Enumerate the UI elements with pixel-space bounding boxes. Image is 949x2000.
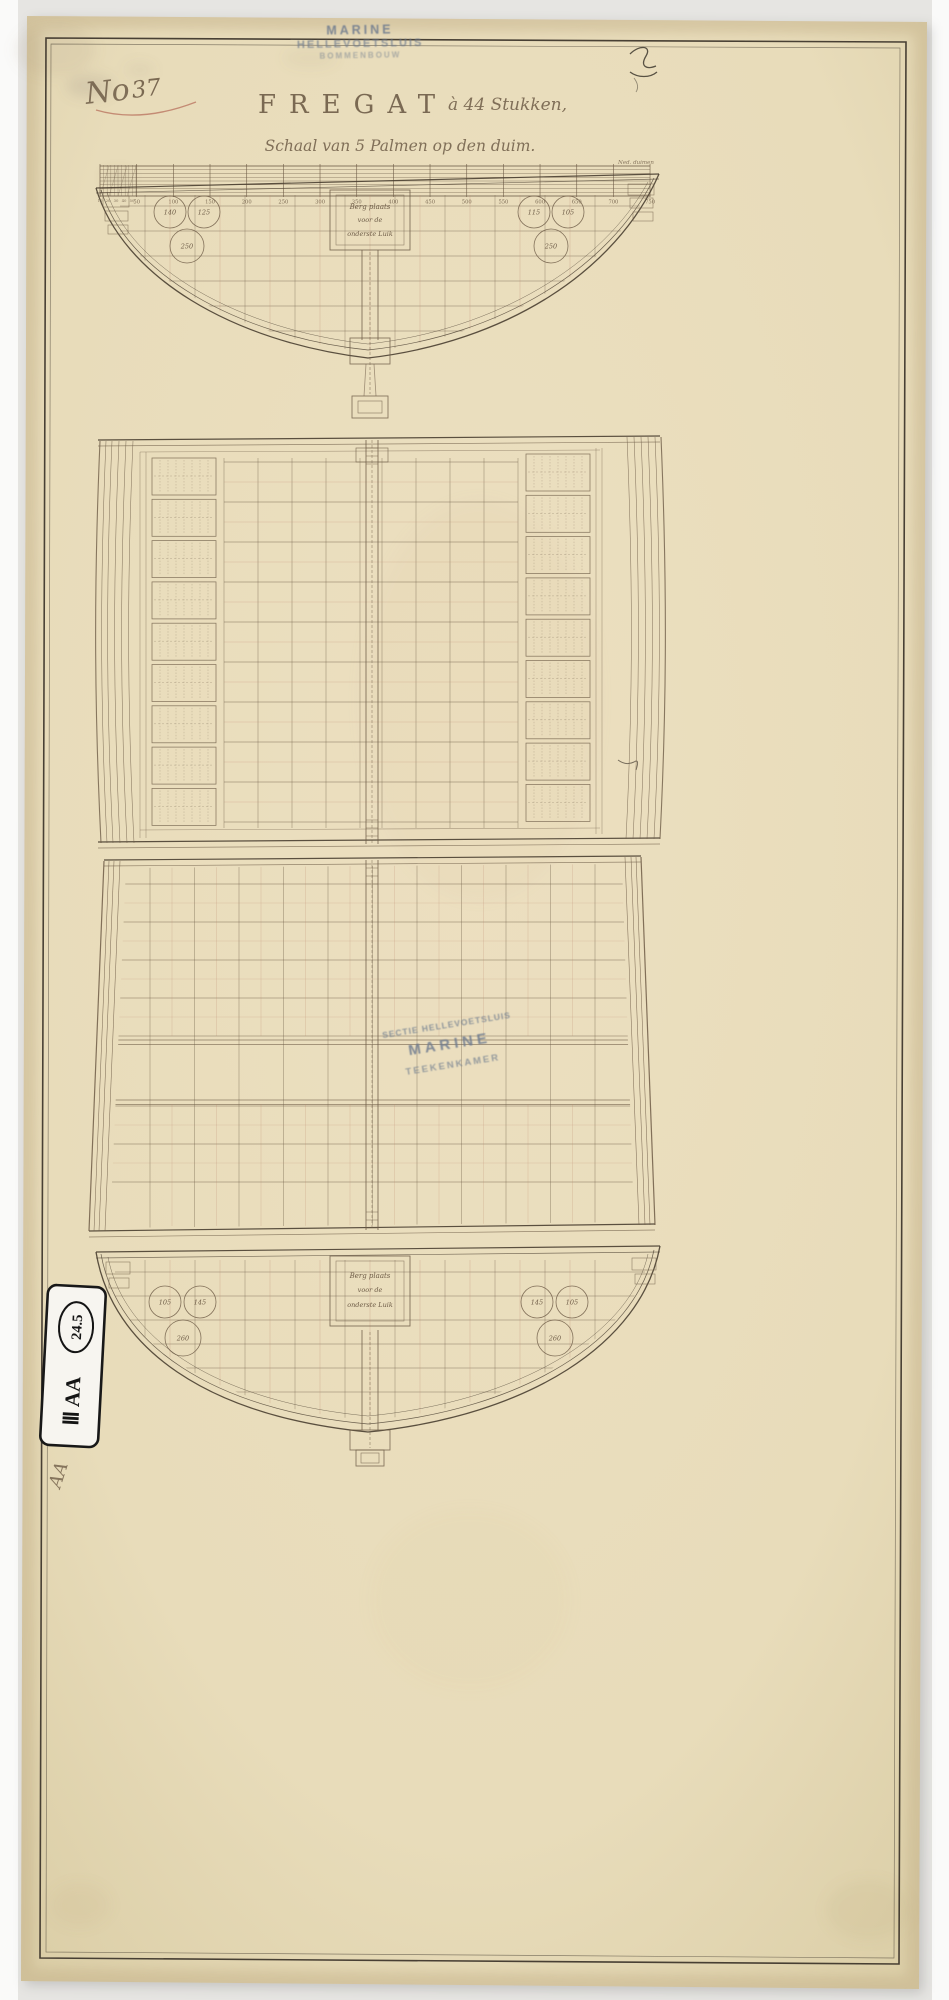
stain (826, 1880, 910, 1940)
archive-label: Ⅲ AA 24.5 (40, 1285, 106, 1448)
barrel-number: 105 (566, 1299, 578, 1307)
barrel-number: 145 (531, 1299, 543, 1307)
scale-major-label: 150 (205, 200, 215, 206)
scale-major-label: 50 (133, 200, 140, 206)
archive-label-circled-number: 24.5 (69, 1314, 86, 1340)
barrel-number: 115 (528, 209, 540, 217)
barrel-number: 145 (194, 1299, 206, 1307)
marine-stamp-line3: BOMMENBOUW (319, 50, 401, 60)
scale-major-label: 600 (535, 200, 545, 206)
scan-edge-right (932, 0, 949, 2000)
barrel-number: 250 (544, 243, 557, 251)
scale-major-label: 550 (498, 200, 508, 206)
storage-box-line: voor de (358, 216, 383, 224)
barrel-number: 260 (548, 1335, 561, 1343)
barrel-number: 250 (180, 243, 193, 251)
scale-major-label: 450 (425, 200, 435, 206)
barrel-number: 140 (164, 209, 176, 217)
plan-title: FREGAT (258, 90, 448, 120)
storage-box-line: Berg plaats (349, 203, 391, 211)
document-number-value: 37 (130, 74, 163, 103)
scale-major-label: 200 (242, 200, 252, 206)
marine-stamp-line1: MARINE (326, 22, 394, 37)
tone-variation (370, 1510, 570, 1690)
scale-minor-label: 40 (122, 198, 127, 203)
storage-box-line: onderste Luik (347, 1301, 393, 1309)
plan-title-suffix: à 44 Stukken, (448, 95, 567, 115)
document-number-prefix: No (83, 72, 132, 112)
barrel-number: 260 (176, 1335, 189, 1343)
ship-plan-drawing: MARINE HELLEVOETSLUIS BOMMENBOUW No 37 F… (0, 0, 949, 2000)
marine-stamp-line2: HELLEVOETSLUIS (297, 37, 424, 51)
scale-major-label: 250 (278, 200, 288, 206)
storage-box-line: onderste Luik (347, 230, 393, 238)
scale-major-label: 750 (645, 200, 655, 206)
scale-minor-label: 30 (114, 198, 119, 203)
barrel-number: 105 (562, 209, 574, 217)
storage-box-line: Berg plaats (349, 1272, 391, 1280)
paper-sheet (21, 16, 927, 1989)
scale-major-label: 650 (572, 200, 582, 206)
barrel-number: 125 (198, 209, 210, 217)
scale-unit-label: Ned. duimen (617, 160, 654, 166)
plan-subtitle: Schaal van 5 Palmen op den duim. (265, 137, 536, 155)
scale-major-label: 700 (608, 200, 618, 206)
stain (50, 1883, 110, 1927)
storage-box-line: voor de (358, 1286, 383, 1294)
stain (15, 24, 95, 76)
scanned-plan-stage: MARINE HELLEVOETSLUIS BOMMENBOUW No 37 F… (0, 0, 949, 2000)
archive-label-text: Ⅲ AA (59, 1375, 86, 1426)
scan-edge-left (0, 0, 18, 2000)
barrel-number: 105 (159, 1299, 171, 1307)
